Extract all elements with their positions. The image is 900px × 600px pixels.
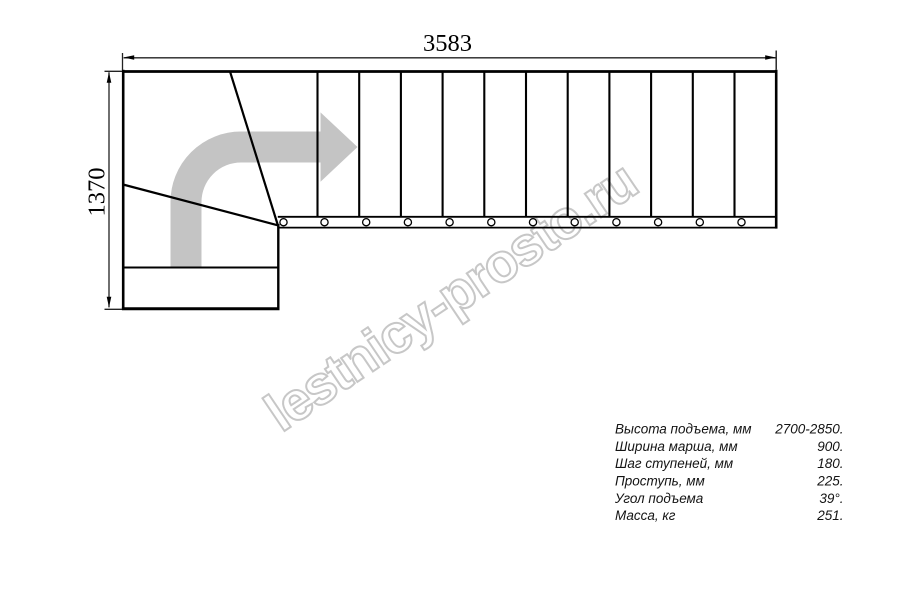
- svg-text:225.: 225.: [816, 474, 843, 489]
- svg-text:3583: 3583: [423, 30, 472, 57]
- svg-text:Высота подъема, мм: Высота подъема, мм: [615, 422, 751, 437]
- svg-text:180.: 180.: [817, 456, 843, 471]
- svg-text:900.: 900.: [817, 439, 843, 454]
- svg-text:Проступь, мм: Проступь, мм: [615, 474, 705, 489]
- svg-text:251.: 251.: [816, 508, 843, 523]
- svg-text:Шаг ступеней, мм: Шаг ступеней, мм: [615, 456, 733, 471]
- svg-text:Ширина марша, мм: Ширина марша, мм: [615, 439, 738, 454]
- svg-text:39°.: 39°.: [819, 491, 843, 506]
- svg-text:Масса, кг: Масса, кг: [615, 508, 676, 523]
- svg-text:Угол подъема: Угол подъема: [614, 491, 704, 506]
- svg-text:2700-2850.: 2700-2850.: [774, 422, 843, 437]
- svg-text:1370: 1370: [84, 168, 111, 217]
